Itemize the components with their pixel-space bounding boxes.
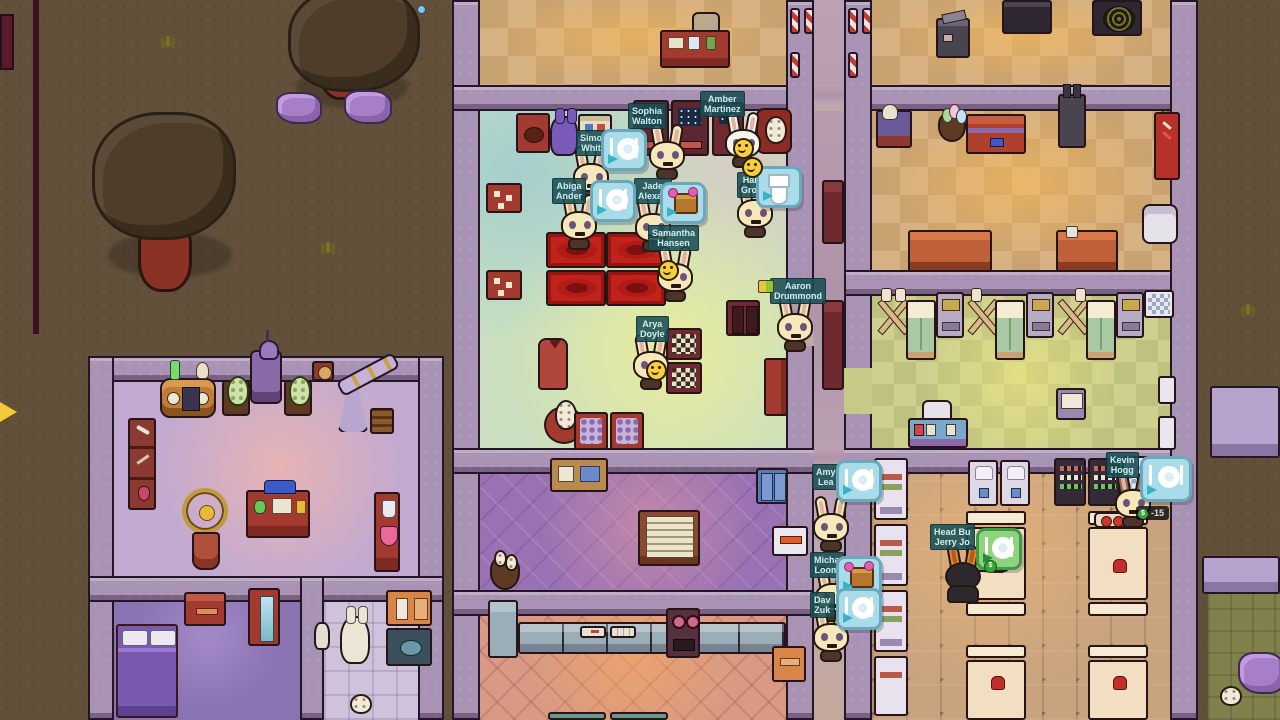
framed-portrait[interactable]: [312, 361, 334, 381]
orrery-pedestal: [192, 532, 220, 570]
bottle-row: [1060, 466, 1082, 471]
fridge-label: [880, 639, 902, 646]
monitor-buttons: [1032, 322, 1050, 331]
cart-sack: [882, 104, 898, 120]
medical-monitor[interactable]: [1116, 292, 1144, 338]
open-book-icon: [1061, 393, 1083, 409]
medical-monitor[interactable]: [1026, 292, 1054, 338]
monitor-table[interactable]: [1056, 388, 1086, 420]
fridge-label: [880, 507, 902, 514]
knife-icon: [870, 597, 873, 617]
tool-icon: [1162, 131, 1172, 140]
smiley-face-icon: [658, 260, 679, 281]
nametag: Amber Martinez: [700, 91, 745, 117]
corridor-shelf[interactable]: [822, 180, 844, 244]
food-band: [880, 484, 902, 490]
oven-door: [673, 639, 695, 651]
water-dispenser[interactable]: [968, 460, 998, 506]
locker-door: [761, 473, 773, 501]
supply-cart[interactable]: [876, 110, 912, 148]
character-sophia-walton[interactable]: [648, 124, 686, 180]
med-supplies: [914, 424, 924, 436]
pillow: [150, 630, 176, 646]
thought-bubble-toilet: [756, 166, 802, 208]
fridge[interactable]: [488, 600, 518, 658]
grass-tuft: [326, 242, 330, 253]
character-body: [820, 540, 842, 552]
character-body: [664, 290, 686, 302]
vase[interactable]: [314, 622, 330, 650]
mirror-door[interactable]: [248, 588, 280, 646]
spotted-egg: [505, 554, 518, 571]
speaker-icon: [524, 127, 544, 143]
lab-machine[interactable]: [936, 18, 970, 58]
tree-canopy: [92, 112, 236, 240]
toilet-sign-icon: [396, 598, 408, 620]
basin-icon: [400, 640, 422, 656]
table-emblem-icon: [1113, 676, 1127, 690]
wall: [88, 356, 114, 720]
green-egg: [289, 376, 311, 406]
purple-rock[interactable]: [1238, 652, 1280, 694]
smiley-face-icon: [742, 157, 763, 178]
door-pillar: [848, 52, 858, 78]
steam-boiler[interactable]: [160, 378, 216, 418]
monitor-buttons: [1122, 322, 1140, 331]
hospital-bed[interactable]: [1086, 300, 1116, 360]
building-roof: [1210, 386, 1280, 458]
checkerboard-icon: [672, 368, 696, 388]
bucket-icon: [1066, 226, 1078, 238]
wall-unit[interactable]: [772, 646, 806, 682]
bunny-skull-face-icon: [649, 141, 685, 170]
fence: [33, 0, 39, 334]
smiley-face-icon: [646, 360, 667, 381]
water-dispenser[interactable]: [1000, 460, 1030, 506]
cutting-board[interactable]: [580, 626, 606, 638]
arrow-icon: [843, 613, 853, 623]
tool-icon: [1162, 121, 1172, 130]
bench[interactable]: [966, 602, 1026, 616]
character-body: [784, 340, 806, 352]
drawer-handle: [196, 608, 218, 615]
door-pillar: [848, 8, 858, 34]
desk-papers: [688, 36, 700, 50]
doctor-chair[interactable]: [922, 400, 952, 420]
arrow-icon: [1147, 485, 1157, 495]
workbench[interactable]: [1056, 230, 1118, 272]
burner-icon: [672, 615, 686, 629]
thought-bubble-eat-active: [976, 528, 1022, 570]
bench[interactable]: [1088, 645, 1148, 658]
money-delta-badge: -15: [1136, 506, 1169, 520]
iv-stand[interactable]: [1058, 290, 1088, 344]
dom-pips: [494, 191, 500, 197]
vial-icon: [170, 360, 180, 380]
iv-stand[interactable]: [878, 290, 908, 344]
ladder[interactable]: [370, 408, 394, 434]
smiley-face-icon: [733, 138, 754, 159]
tap-icon: [1011, 488, 1021, 498]
machine-pipes: [1063, 84, 1071, 98]
green-egg: [227, 376, 249, 406]
desk-item: [706, 36, 716, 50]
bench[interactable]: [966, 511, 1026, 525]
door-pillar: [790, 52, 800, 78]
bench[interactable]: [1088, 602, 1148, 616]
desk-papers: [668, 37, 684, 49]
training-dummy[interactable]: [538, 338, 568, 390]
office-chair[interactable]: [692, 12, 720, 32]
nametag: Arya Doyle: [636, 316, 669, 342]
medical-monitor[interactable]: [936, 292, 964, 338]
thought-bubble-eat: [590, 180, 636, 222]
press-machine[interactable]: [1002, 0, 1052, 34]
chess-table[interactable]: [666, 362, 702, 394]
wall-locker[interactable]: [1158, 416, 1176, 450]
hex-bench[interactable]: [610, 412, 644, 450]
study-desk[interactable]: [246, 490, 310, 538]
pinned-card: [580, 466, 600, 482]
monitor-screen-icon: [1032, 299, 1050, 311]
figurine-ear-icon: [358, 606, 368, 624]
knife-icon: [1010, 537, 1013, 557]
sofa[interactable]: [546, 270, 606, 306]
arrow-icon: [763, 191, 773, 201]
serving-fridge[interactable]: [874, 656, 908, 716]
chest-band: [968, 128, 1024, 133]
wand-icon: [136, 454, 149, 464]
monitor-screen-icon: [942, 299, 960, 311]
character-body: [744, 226, 766, 238]
machine-pipes: [1073, 84, 1081, 98]
monitor-buttons: [942, 322, 960, 331]
nametag: Kevin Hogg: [1106, 452, 1139, 478]
gauge-icon: [167, 392, 180, 405]
prep-table[interactable]: [548, 712, 606, 720]
spiral-screen-icon: [1103, 6, 1135, 32]
bone-icon: [136, 425, 150, 435]
dummy-notch: [549, 340, 561, 349]
machine-light: [943, 34, 953, 42]
unit-slot: [780, 658, 800, 666]
food-band: [880, 474, 902, 480]
doorway[interactable]: [844, 368, 872, 414]
door-pillar: [804, 8, 814, 34]
water-jug-icon: [975, 466, 993, 480]
doorway[interactable]: [814, 85, 844, 111]
flower-icon: [668, 188, 678, 198]
food-band: [880, 540, 902, 546]
burner-icon: [686, 615, 700, 629]
office-desk[interactable]: [660, 30, 730, 68]
cabinet-grid: [1148, 294, 1170, 314]
knife-icon: [635, 138, 638, 158]
book-icon: [272, 498, 292, 514]
character-body: [820, 650, 842, 662]
bunny-figurine[interactable]: [340, 616, 370, 664]
food-band: [880, 606, 902, 612]
hypno-machine[interactable]: [1092, 0, 1142, 36]
nametag: Samantha Hansen: [648, 225, 699, 251]
radio-unit[interactable]: [516, 113, 550, 153]
storage-chest[interactable]: [966, 114, 1026, 154]
stove[interactable]: [666, 608, 700, 658]
statue-ear-icon: [555, 108, 565, 124]
office-floor: [480, 0, 786, 85]
monitor-screen-icon: [1122, 299, 1140, 311]
knife-icon: [870, 469, 873, 489]
egg-display[interactable]: [284, 380, 312, 416]
arrow-icon: [608, 154, 618, 164]
statue-ear-icon: [567, 108, 577, 124]
game-table[interactable]: [486, 270, 522, 300]
nametag: Abiga Ander: [552, 178, 586, 204]
medical-desk[interactable]: [908, 418, 968, 448]
bottle-icon: [296, 500, 306, 514]
bunny-skull-face-icon: [777, 313, 813, 342]
player-cursor-icon: [0, 402, 17, 422]
wall-locker[interactable]: [1158, 376, 1176, 404]
bottle-row: [1060, 484, 1082, 489]
thought-bubble-eat: [836, 588, 882, 630]
food-band: [880, 550, 902, 556]
canteen-table[interactable]: [1088, 660, 1148, 720]
beaker-icon: [382, 500, 396, 518]
bottle-row: [1060, 475, 1082, 480]
lockers[interactable]: [756, 468, 788, 504]
knife-icon: [591, 630, 599, 633]
iv-bag-icon: [1075, 288, 1086, 302]
hex-pattern: [580, 418, 602, 444]
tap-icon: [979, 488, 989, 498]
character-aaron-drummond[interactable]: [776, 296, 814, 352]
shelf-panel: [732, 306, 744, 334]
mirror: [260, 596, 274, 642]
purple-rock[interactable]: [276, 92, 322, 124]
figurine-ear-icon: [346, 606, 356, 624]
water-jug-icon: [1007, 466, 1025, 480]
game-table[interactable]: [486, 183, 522, 213]
knife-icon: [624, 189, 627, 209]
chest-lock-icon: [990, 138, 1004, 147]
arrow-icon: [667, 207, 677, 217]
canteen-table[interactable]: [1088, 527, 1148, 600]
iv-bag-icon: [881, 288, 892, 302]
food-band: [880, 616, 902, 622]
desk-chairback: [264, 480, 296, 494]
purple-rock[interactable]: [344, 90, 392, 124]
flask-icon: [254, 500, 266, 514]
nametag: Sophia Walton: [628, 103, 666, 129]
table-emblem-icon: [991, 676, 1005, 690]
blanket-fold: [118, 648, 176, 652]
dispenser-slot: [780, 536, 802, 544]
prep-table[interactable]: [610, 712, 668, 720]
workbench[interactable]: [908, 230, 992, 272]
thought-bubble-eat: [601, 129, 647, 171]
orrery-sun-icon: [199, 505, 215, 521]
chemistry-stand[interactable]: [374, 492, 400, 572]
coin-icon: $: [984, 560, 997, 573]
boiler-panel: [182, 387, 200, 411]
door-pillar: [862, 8, 872, 34]
arrow-icon: [597, 205, 607, 215]
hex-bench[interactable]: [574, 412, 608, 450]
bench[interactable]: [966, 645, 1026, 658]
double-bed[interactable]: [116, 624, 178, 718]
hex-pattern: [616, 418, 638, 444]
gate-post: [0, 14, 14, 70]
orrery[interactable]: [182, 488, 228, 534]
med-supplies: [926, 424, 936, 436]
chess-table[interactable]: [666, 328, 702, 360]
bunny-skull-face-icon: [813, 513, 849, 542]
food-icon: [1101, 516, 1112, 527]
towel-icon: [414, 598, 428, 620]
newspaper-table[interactable]: [638, 510, 700, 566]
med-supplies: [946, 424, 956, 436]
building-roof: [1202, 556, 1280, 594]
knife-icon: [1180, 465, 1183, 485]
bulb-icon: [196, 362, 209, 379]
serving-tray[interactable]: [610, 626, 636, 638]
hospital-bed[interactable]: [906, 300, 936, 360]
egg-display[interactable]: [222, 380, 250, 416]
vending-machine[interactable]: [1054, 458, 1086, 506]
thought-bubble-eat: [836, 460, 882, 502]
checkerboard-icon: [672, 334, 696, 354]
pillow: [122, 630, 148, 646]
canteen-table[interactable]: [966, 660, 1026, 720]
pinned-card: [558, 466, 574, 482]
tool-cabinet[interactable]: [1154, 112, 1180, 180]
suit-of-armor[interactable]: [250, 350, 282, 404]
character-amy-lea[interactable]: [812, 496, 850, 552]
grass-tuft: [1246, 304, 1250, 315]
supply-cabinet[interactable]: [1144, 290, 1174, 318]
buff-icon: [758, 280, 774, 293]
sink-unit[interactable]: [386, 628, 432, 666]
door-pillar: [790, 8, 800, 34]
sofa-cushion: [617, 279, 657, 297]
flower-icon: [417, 5, 426, 14]
shelf-panel: [746, 306, 758, 334]
nametag: Dav Zuk: [810, 592, 835, 618]
flask-icon: [380, 526, 398, 546]
dom-pips: [494, 278, 500, 284]
wall-bench[interactable]: [764, 358, 788, 416]
food-band: [880, 672, 902, 678]
grass-tuft: [166, 36, 170, 47]
curio-shelf[interactable]: [128, 418, 156, 510]
kitchen-counter[interactable]: [518, 622, 786, 654]
iv-bag-icon: [971, 288, 982, 302]
corridor-shelf[interactable]: [822, 300, 844, 390]
fridge-label: [880, 573, 902, 580]
character-body: [947, 585, 979, 603]
thought-bubble-eat: [1140, 456, 1192, 502]
wall-dispenser[interactable]: [772, 526, 808, 556]
iv-stand[interactable]: [968, 290, 998, 344]
work-chair[interactable]: [1142, 204, 1178, 244]
flower-icon: [844, 562, 854, 572]
lounge-floor: [480, 474, 786, 590]
spotted-egg[interactable]: [1220, 686, 1242, 706]
table-emblem-icon: [1113, 559, 1127, 573]
spotted-egg[interactable]: [765, 116, 787, 144]
arrow-icon: [843, 485, 853, 495]
locker-door: [774, 473, 786, 501]
flag-icon: [266, 330, 269, 342]
bottle-row: [1094, 484, 1116, 489]
egg-basket[interactable]: [490, 556, 520, 590]
coffee-machine[interactable]: [1058, 94, 1086, 148]
spotted-egg[interactable]: [350, 694, 372, 714]
flower-icon: [864, 561, 874, 571]
character-body: [568, 238, 590, 250]
egg-basket[interactable]: [938, 112, 966, 142]
nametag: Aaron Drummond: [770, 278, 826, 304]
sofa-cushion: [557, 279, 597, 297]
plate-icon: [1158, 466, 1180, 488]
nametag: Head Bu Jerry Jo: [930, 524, 975, 550]
bathroom-cabinet[interactable]: [386, 590, 432, 626]
portrait-face-icon: [318, 366, 332, 380]
iv-bag-icon: [895, 288, 906, 302]
bookcase[interactable]: [726, 300, 760, 336]
newspaper: [646, 516, 694, 558]
flower-icon: [688, 187, 698, 197]
armor-helmet-icon: [259, 340, 279, 360]
wardrobe[interactable]: [184, 592, 226, 626]
potion-icon: [138, 486, 150, 501]
bulletin-board[interactable]: [550, 458, 608, 492]
thought-bubble-gift: [660, 182, 706, 224]
game-viewport: Simo Whit Sophia Walton Amber Martinez H…: [0, 0, 1280, 720]
hospital-bed[interactable]: [995, 300, 1025, 360]
fork-icon: [1149, 465, 1152, 485]
wall: [1170, 0, 1198, 720]
